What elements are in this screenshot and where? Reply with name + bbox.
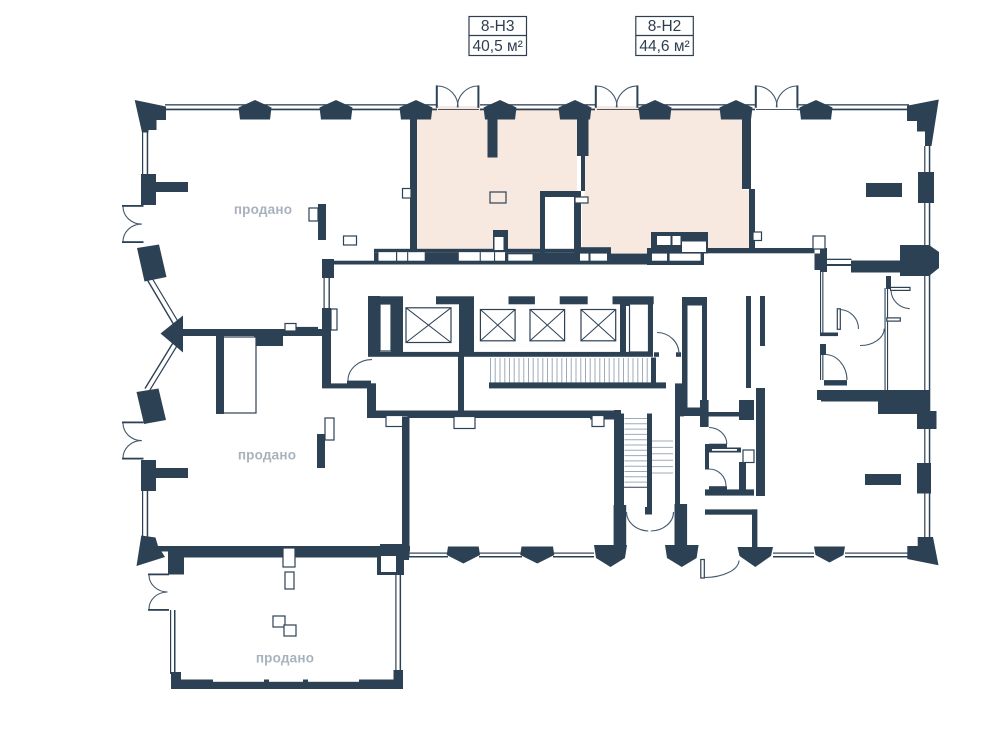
svg-text:8-Н3: 8-Н3	[481, 18, 515, 35]
svg-text:40,5 м²: 40,5 м²	[473, 38, 523, 55]
svg-text:8-Н2: 8-Н2	[648, 18, 682, 35]
svg-text:продано: продано	[256, 651, 314, 666]
svg-text:продано: продано	[238, 448, 296, 463]
svg-text:продано: продано	[234, 202, 292, 217]
svg-text:44,6 м²: 44,6 м²	[639, 38, 689, 55]
